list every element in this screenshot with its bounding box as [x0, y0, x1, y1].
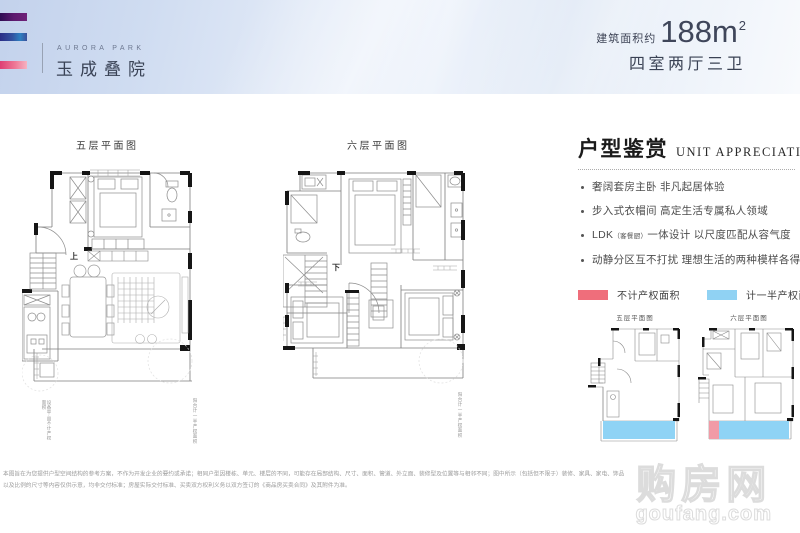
panel-title-en: UNIT APPRECIATION: [676, 145, 800, 160]
floor5-stairs: [30, 227, 66, 289]
floor6-note-right: 阳台计一半产权面积: [458, 392, 463, 438]
floor5-note-right: 阳台计一半产权面积: [193, 398, 198, 444]
area-prefix: 建筑面积约: [596, 30, 656, 46]
brand-name-en: AURORA PARK: [57, 45, 144, 52]
dotted-divider: [578, 169, 795, 170]
panel-title: 户型鉴赏 UNIT APPRECIATION: [578, 133, 800, 163]
legend-item-red: 不计产权面积: [578, 287, 680, 302]
floor5-balcony: [22, 339, 192, 391]
floor6-thumbnail-label: 六层平面图: [697, 312, 800, 322]
floor6-bedroom-center: [349, 179, 411, 253]
floor5-bed: [88, 176, 144, 249]
floor6-plan-drawing: [283, 165, 465, 390]
floor6-closet: [302, 175, 326, 189]
floor6-wall-segments: [283, 171, 465, 350]
logo-bar-blue: [0, 33, 27, 41]
floor6-desk: [369, 300, 393, 328]
brand-name-cn: 玉成叠院: [56, 55, 152, 80]
legend-label: 计一半产权面积: [746, 287, 800, 302]
selling-point: 步入式衣帽间 高定生活专属私人领域: [578, 206, 800, 217]
floor6-dashed-circle: [419, 339, 463, 383]
watermark-cn: 购房网: [635, 465, 772, 505]
floor5-thumbnail: 五层平面图: [583, 312, 687, 447]
logo-bar-purple: [0, 13, 27, 21]
disclaimer-text: 本图旨在为您提供户型空间结构的参考方案，不作为开发企业的要约或承诺；相同户型因楼…: [3, 469, 573, 492]
floor5-plan-title: 五层平面图: [76, 137, 139, 152]
red-swatch: [578, 290, 608, 300]
floor5-bathroom: [154, 173, 178, 221]
disclaimer-line1: 本图旨在为您提供户型空间结构的参考方案，不作为开发企业的要约或承诺；相同户型因楼…: [3, 469, 573, 480]
logo-bar-pink: [0, 61, 27, 69]
floor6-stairs: [283, 255, 327, 307]
floor6-room-topleft: [291, 195, 317, 242]
floor6-walls: [287, 173, 463, 378]
room-configuration: 四室两厅三卫: [596, 50, 746, 74]
floor5-plan-drawing: [22, 165, 198, 395]
floor6-thumb-blue-area: [719, 421, 789, 439]
floor5-note-left: 设备平台不计产权面积: [42, 400, 52, 444]
floor6-plan-title: 六层平面图: [347, 137, 410, 152]
area-superscript: 2: [739, 18, 746, 33]
floor5-thumbnail-drawing: [583, 325, 687, 447]
disclaimer-line2: 以及比例的尺寸等内容仅供示意，均非交付标准；房屋实际交付标准、买卖双方权利义务以…: [3, 480, 573, 491]
panel-title-cn: 户型鉴赏: [578, 133, 668, 163]
floor6-stair-direction: 下: [332, 262, 340, 273]
watermark: 购房网 goufang.com: [635, 465, 772, 523]
floor6-thumbnail: 六层平面图: [697, 312, 800, 447]
floor5-walls: [22, 173, 192, 381]
logo-divider: [42, 43, 43, 73]
selling-points-list: 奢阔套房主卧 非凡起居体验 步入式衣帽间 高定生活专属私人领域 LDK（客餐厨）…: [578, 182, 800, 279]
floor5-dining: [62, 265, 114, 337]
selling-point: 奢阔套房主卧 非凡起居体验: [578, 182, 800, 193]
floor6-bedroom-right: [405, 290, 460, 340]
area-legend: 不计产权面积 计一半产权面积: [578, 287, 800, 302]
area-value: 188m: [660, 17, 738, 47]
floor5-stair-direction: 上: [70, 251, 78, 262]
floor5-cabinet: [88, 251, 148, 261]
floor5-wardrobe: [70, 177, 86, 223]
floor6-room-right: [416, 175, 462, 237]
legend-label: 不计产权面积: [617, 287, 680, 302]
floor6-ticks: [298, 249, 457, 286]
legend-item-blue: 计一半产权面积: [707, 287, 800, 302]
floorplan-promo-page: { "header": { "brand_en": "AURORA PARK",…: [0, 0, 800, 533]
unit-summary: 建筑面积约 188m 2 四室两厅三卫: [596, 17, 746, 74]
blue-swatch: [707, 290, 737, 300]
floor5-living-rug: [112, 273, 188, 344]
floor6-thumbnail-drawing: [697, 325, 800, 447]
floor5-thumbnail-label: 五层平面图: [583, 312, 687, 322]
watermark-url: goufang.com: [635, 505, 772, 523]
selling-point: LDK（客餐厨）一体设计 以尺度匹配从容气度: [578, 230, 800, 242]
selling-point: 动静分区互不打扰 理想生活的两种模样各得其所: [578, 255, 800, 266]
floor5-thumb-blue-area: [603, 421, 675, 439]
floor6-thumb-pink-area: [709, 421, 719, 439]
